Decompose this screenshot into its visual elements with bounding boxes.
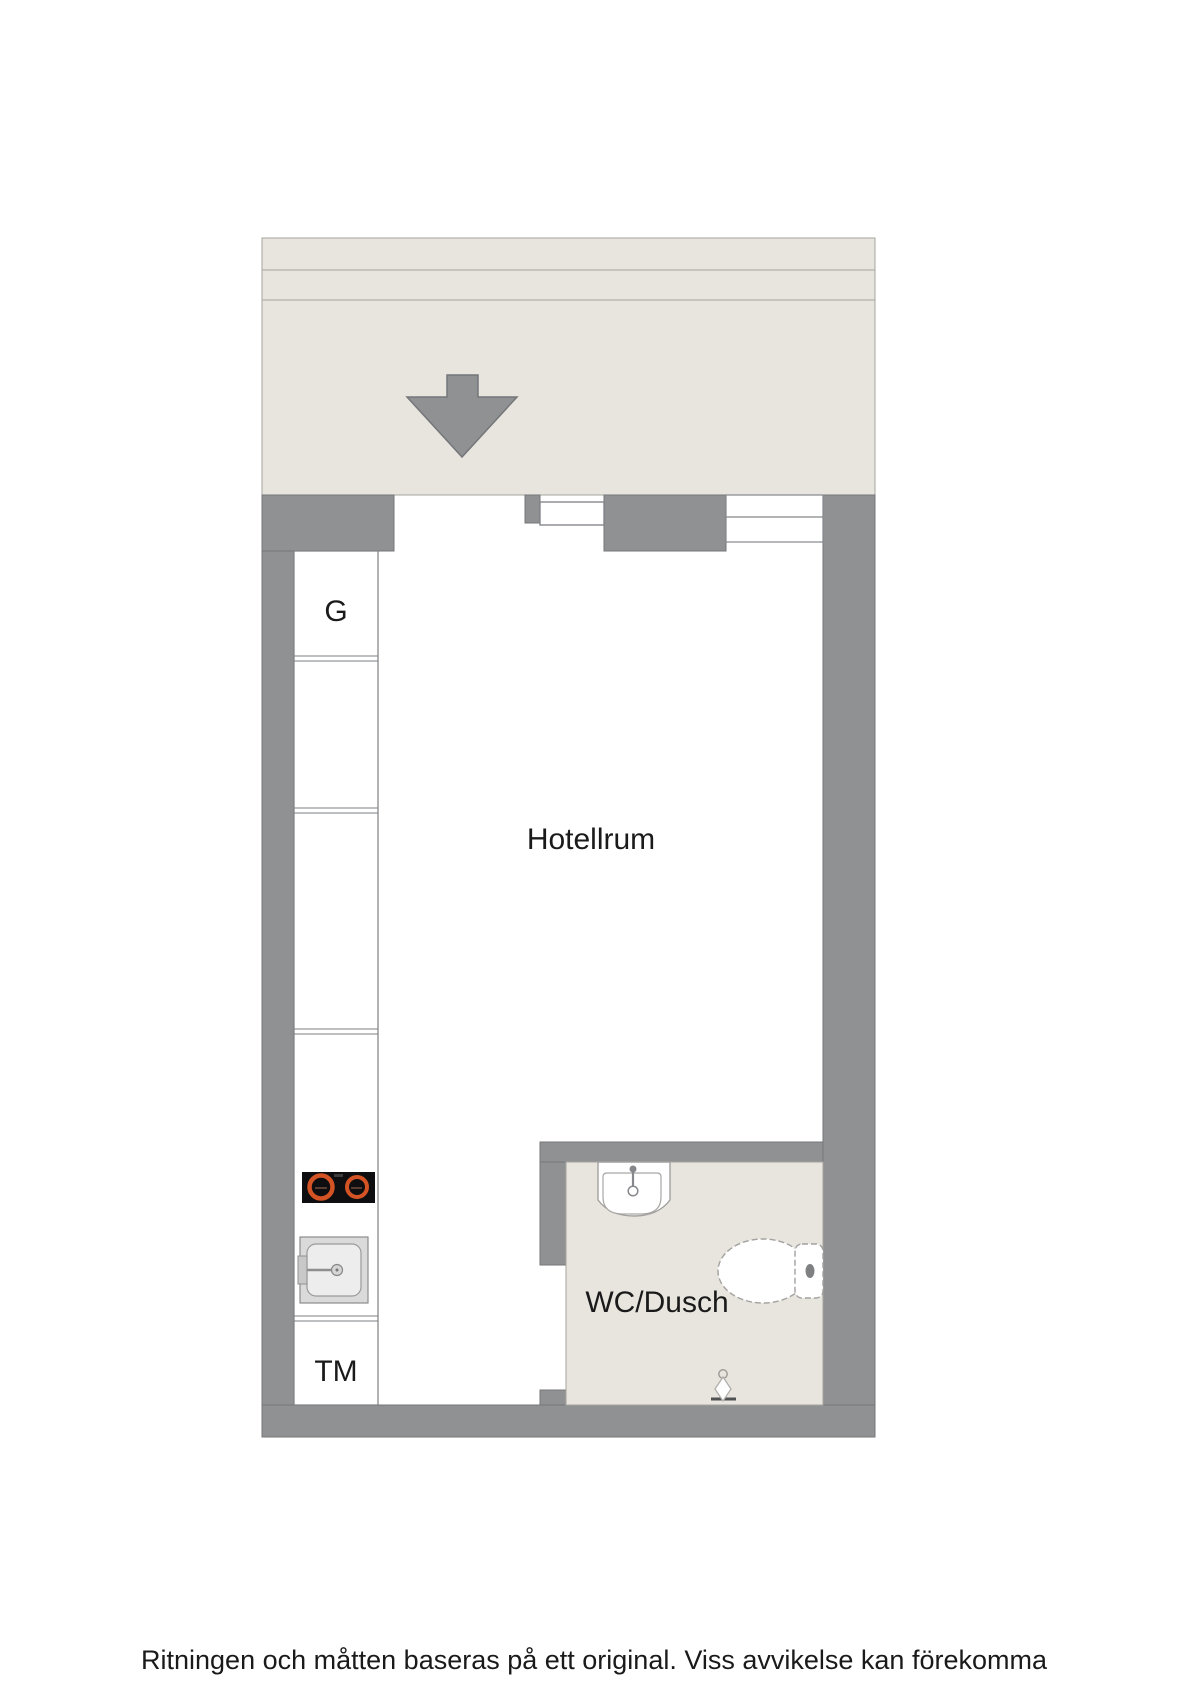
closet-label: G — [324, 595, 347, 628]
wall-top-middle-block — [604, 495, 726, 551]
wall-wc-top — [540, 1142, 823, 1162]
washing-machine-label: TM — [314, 1355, 357, 1388]
stove-controls — [334, 1174, 343, 1177]
kitchen-sink-icon — [298, 1237, 368, 1303]
stairwell-area — [262, 238, 875, 495]
wall-top-left-block — [262, 495, 394, 551]
hotel-room-label: Hotellrum — [527, 823, 655, 856]
washbasin-drain — [628, 1186, 638, 1196]
entrance-door-leaf — [540, 502, 604, 525]
toilet-icon — [718, 1239, 823, 1303]
wall-right — [823, 495, 875, 1437]
toilet-flush-button — [806, 1264, 815, 1278]
wall-wc-left — [540, 1162, 566, 1265]
wall-bottom — [262, 1405, 875, 1437]
window — [726, 495, 823, 542]
wall-wc-door-stub — [540, 1390, 566, 1405]
sink-drain-dot — [336, 1269, 339, 1272]
stairwell-floor — [262, 238, 875, 495]
disclaimer-text: Ritningen och måtten baseras på ett orig… — [141, 1645, 1048, 1675]
sink-faucet-base — [298, 1256, 307, 1284]
wall-door-stub — [525, 495, 540, 523]
wall-left — [262, 495, 294, 1437]
window-frame — [726, 495, 823, 542]
washbasin-icon — [598, 1162, 670, 1216]
floor-plan: G Hotellrum WC/Dusch TM Ritningen och må… — [0, 0, 1200, 1697]
stove-icon — [302, 1172, 375, 1203]
wc-label: WC/Dusch — [585, 1286, 728, 1319]
floor-plan-page: G Hotellrum WC/Dusch TM Ritningen och må… — [0, 0, 1200, 1697]
